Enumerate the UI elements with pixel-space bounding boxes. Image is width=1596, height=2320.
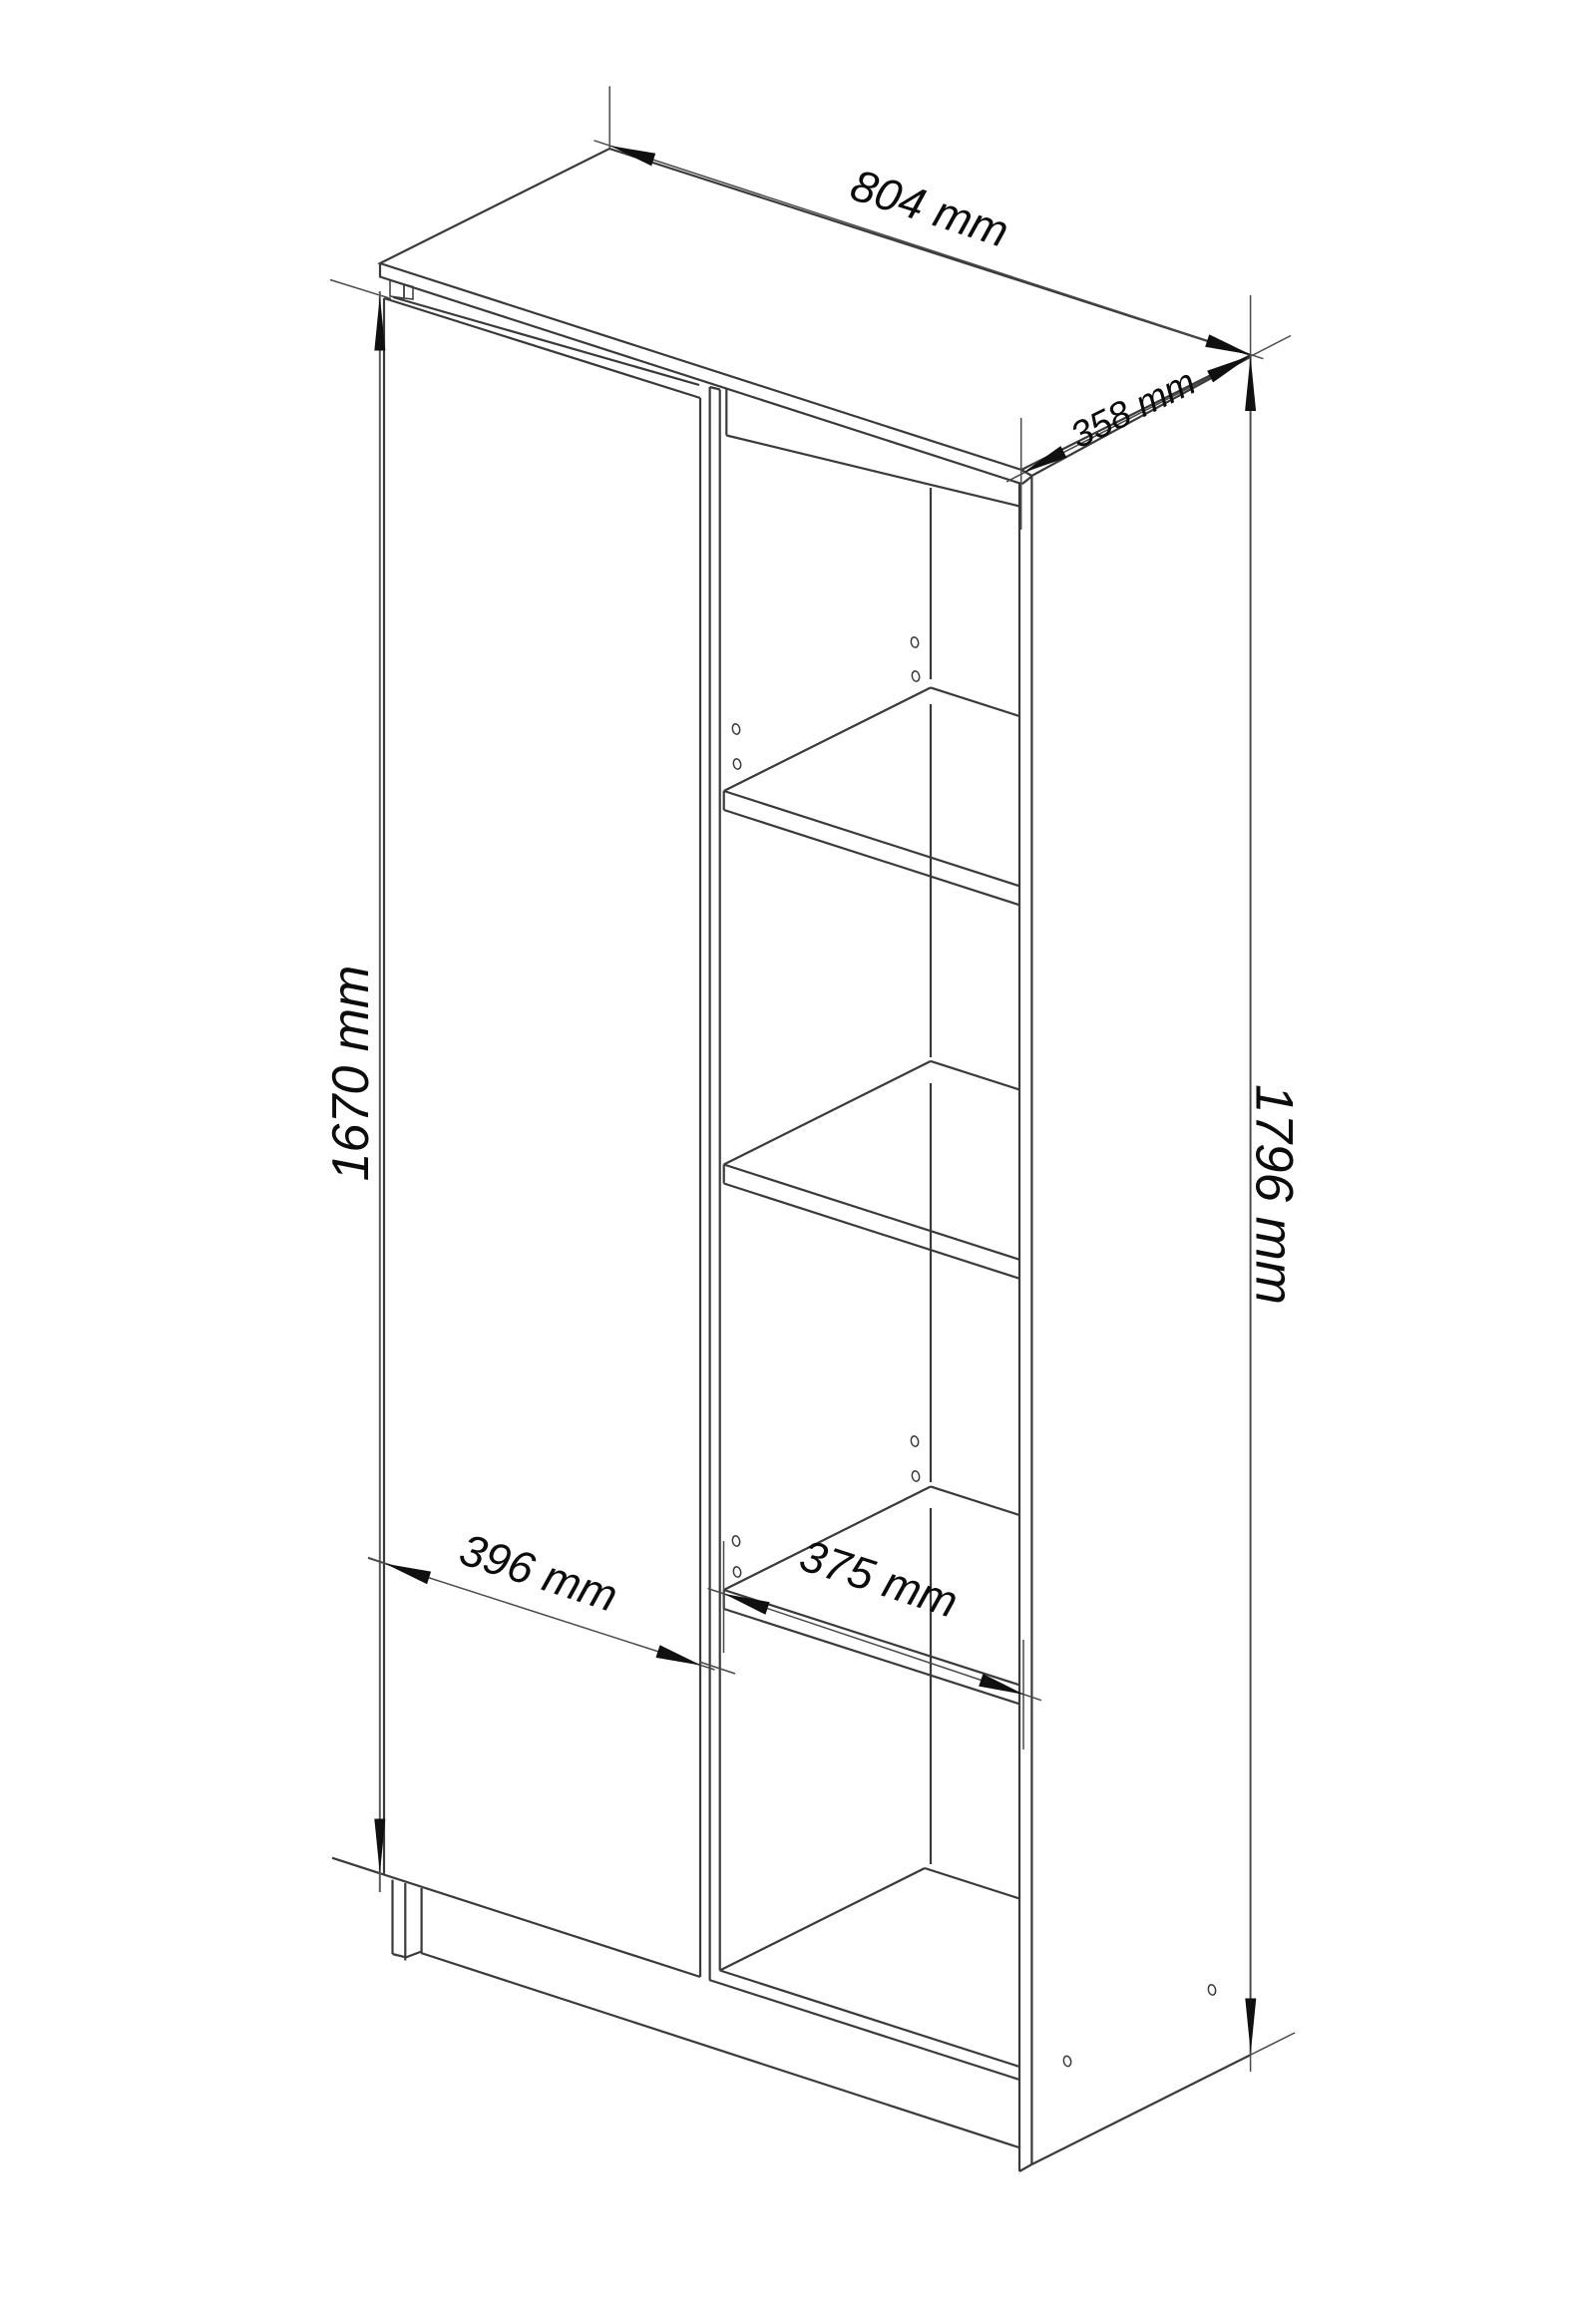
- svg-text:1796 mm: 1796 mm: [1245, 1084, 1304, 1305]
- svg-text:1670 mm: 1670 mm: [322, 966, 380, 1182]
